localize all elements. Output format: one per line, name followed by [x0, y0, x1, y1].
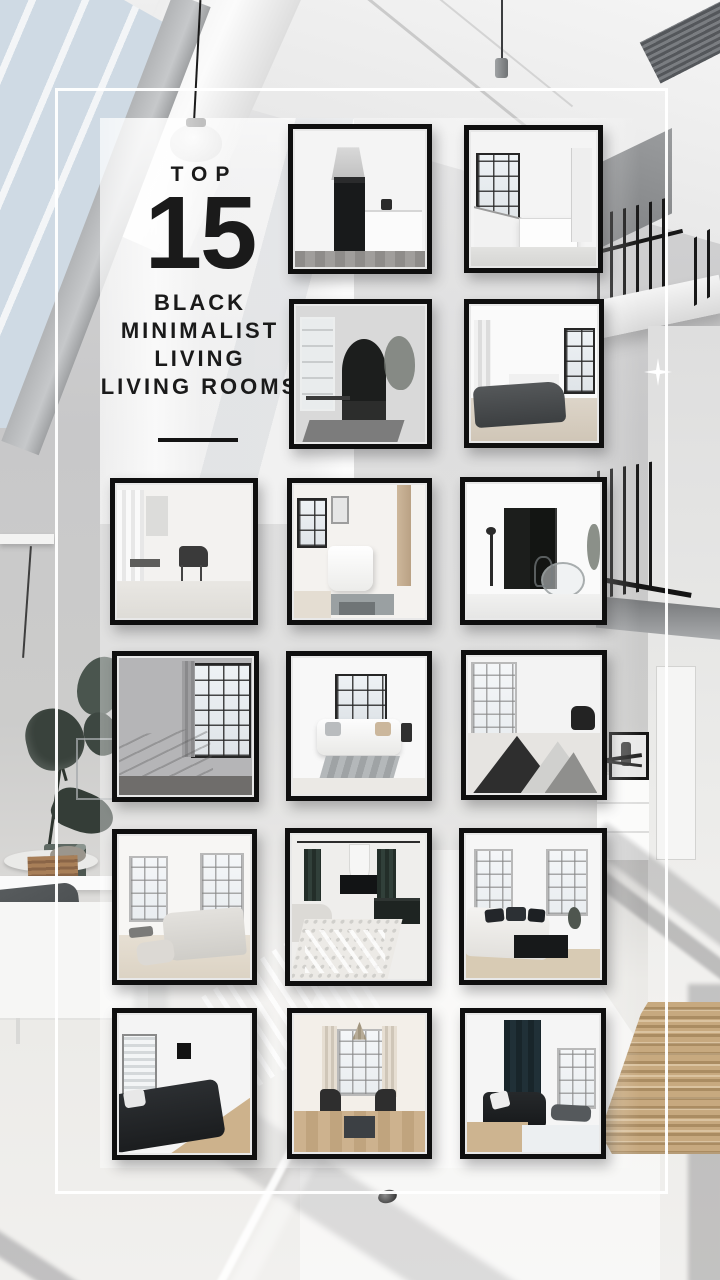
photo: [465, 1013, 601, 1154]
hanging-wire: [22, 546, 32, 658]
photo: [465, 482, 602, 620]
window-shape: [546, 849, 588, 916]
floor-shape: [117, 581, 251, 618]
rug-shape: [303, 420, 406, 442]
window-shape: [335, 674, 387, 723]
framed-photo-airy-studio: [110, 478, 258, 625]
doormat-shape: [344, 1116, 375, 1138]
curtain-shape: [382, 1026, 398, 1097]
floor-shape: [293, 778, 425, 794]
framed-photo-symmetric-room: [287, 1008, 432, 1159]
cushion-shape: [506, 907, 526, 921]
window-shape: [471, 662, 517, 742]
poster-subtitle: BLACK MINIMALIST LIVING LIVING ROOMS: [82, 289, 318, 401]
daybed-shape: [472, 381, 565, 428]
window-shape: [297, 498, 327, 547]
art-frame-shape: [331, 496, 349, 524]
tall-cabinet-shape: [571, 148, 592, 242]
window-shape: [557, 1048, 597, 1110]
chair-outline-shape: [534, 556, 554, 587]
window-shape: [474, 849, 513, 916]
floor-shape: [471, 247, 596, 266]
plant-shape: [384, 336, 415, 390]
chaise-shape: [551, 1104, 591, 1122]
stove-shape: [334, 177, 365, 253]
pillow-shape: [375, 722, 391, 736]
subtitle-line: LIVING ROOMS: [82, 373, 318, 401]
floor-lamp-shape: [490, 532, 493, 586]
floor-shape: [295, 251, 425, 267]
framed-photo-teal-panel: [460, 1008, 606, 1159]
hanging-rod: [501, 0, 503, 64]
photo: [469, 130, 598, 268]
stove-shape: [401, 723, 412, 742]
floor-shape: [119, 776, 252, 795]
poster-canvas: TOP 15 BLACK MINIMALIST LIVING LIVING RO…: [0, 0, 720, 1280]
photo: [292, 483, 427, 620]
white-rug-shape: [522, 1125, 599, 1152]
plant-shape: [587, 524, 600, 570]
cabinet-shape: [377, 849, 396, 898]
subtitle-line: MINIMALIST: [82, 317, 318, 345]
photo: [117, 1013, 252, 1155]
console-shape: [306, 396, 350, 400]
photo: [115, 483, 253, 620]
photo: [291, 656, 427, 796]
coffee-table-shape: [514, 935, 568, 958]
bench-shape: [130, 559, 159, 567]
chair-shape: [571, 706, 595, 730]
wood-column-shape: [397, 485, 410, 586]
counter-shape: [365, 210, 422, 256]
island-shape: [519, 218, 579, 249]
subtitle-line: LIVING: [82, 345, 318, 373]
photo: [117, 834, 252, 980]
framed-photo-draped-table: [287, 478, 432, 625]
photo: [293, 129, 427, 269]
photo: [294, 304, 427, 444]
framed-photo-lsofa-room: [459, 828, 607, 985]
cushion-shape: [484, 908, 504, 923]
framed-photo-arch-mirror: [289, 299, 432, 449]
photo: [117, 656, 254, 797]
draped-table-shape: [328, 546, 373, 591]
art-square-shape: [177, 1043, 191, 1060]
framed-photo-black-daybed: [112, 1008, 257, 1160]
tv-shape: [340, 875, 377, 894]
framed-photo-sectional-room: [112, 829, 257, 985]
wood-floor-shape: [467, 1122, 528, 1152]
kettle-shape: [381, 199, 393, 210]
wardrobe-shape: [146, 496, 167, 536]
framed-photo-kitchen-stove: [288, 124, 432, 274]
ceiling-track-shape: [297, 841, 419, 843]
framed-photo-moody-bedroom: [112, 651, 259, 802]
lamp-head-shape: [486, 527, 496, 535]
floor-shape: [294, 591, 331, 618]
cushion-shape: [527, 909, 545, 923]
pillow-shape: [123, 1088, 146, 1108]
photo: [292, 1013, 427, 1154]
window-shape: [129, 856, 167, 922]
framed-photo-tv-wall: [285, 828, 432, 986]
hanging-rod-cap: [495, 58, 508, 78]
photo: [469, 304, 599, 443]
cabinet-shape: [304, 849, 321, 901]
pillow-shape: [325, 722, 341, 736]
curtain-shape: [322, 1026, 338, 1097]
sun-streak-shape: [305, 930, 385, 973]
framed-photo-black-door: [460, 477, 607, 625]
rug-dark-shape: [339, 602, 376, 615]
hood-shape: [331, 147, 365, 180]
framed-photo-quilt-bedroom: [461, 650, 607, 800]
framed-photo-daybed-room: [464, 299, 604, 448]
wall-ledge: [0, 534, 54, 544]
curtain-shape: [117, 490, 144, 583]
photo: [466, 655, 602, 795]
framed-photo-central-window-living: [286, 651, 432, 801]
title-underline: [158, 438, 238, 442]
arch-mirror-shape: [342, 339, 386, 423]
sideboard-leg: [16, 1018, 20, 1044]
subtitle-line: BLACK: [82, 289, 318, 317]
window-shape: [564, 328, 594, 394]
photo: [464, 833, 602, 980]
poster-number: 15: [92, 181, 308, 284]
floor-shape: [467, 594, 600, 618]
sofa-shape: [162, 906, 247, 961]
photo: [290, 833, 427, 981]
framed-photo-kitchen-window: [464, 125, 603, 273]
